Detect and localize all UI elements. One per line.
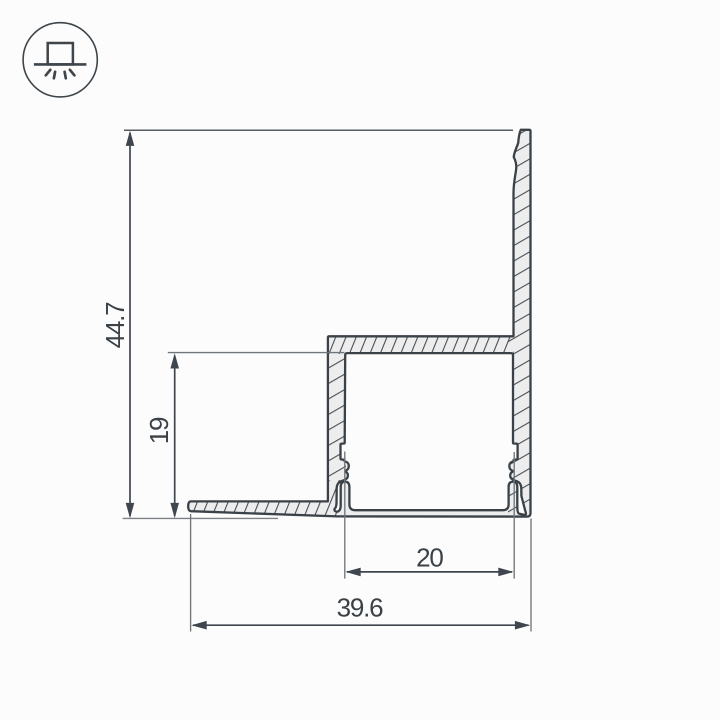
svg-text:39.6: 39.6 [337,592,384,622]
svg-text:44.7: 44.7 [100,302,130,349]
svg-text:19: 19 [144,417,174,444]
svg-text:20: 20 [416,543,443,573]
